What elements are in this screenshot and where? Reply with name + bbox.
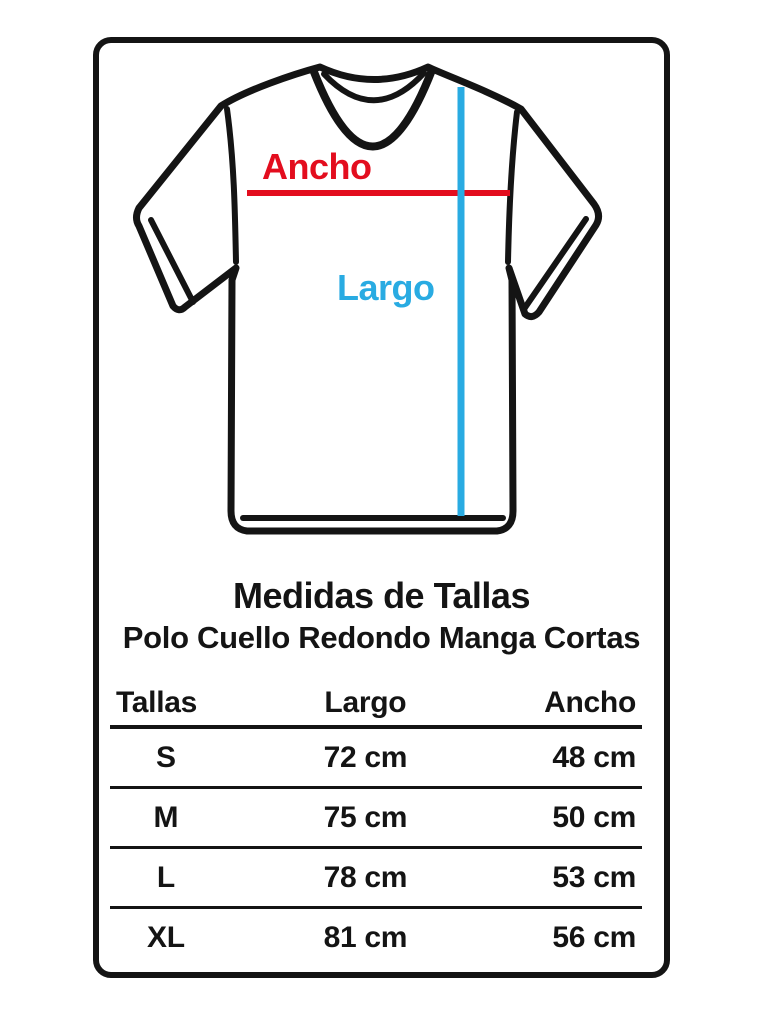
table-row: M 75 cm 50 cm: [110, 789, 642, 849]
width-cell: 50 cm: [509, 801, 642, 835]
size-cell: L: [110, 861, 222, 895]
size-chart-page: Ancho Largo Medidas de Tallas Polo Cuell…: [0, 0, 760, 1013]
width-cell: 48 cm: [509, 741, 642, 775]
header-width: Ancho: [509, 686, 642, 720]
size-table: Tallas Largo Ancho S 72 cm 48 cm M 75 cm…: [110, 680, 642, 966]
chart-title: Medidas de Tallas: [93, 576, 670, 616]
header-length: Largo: [222, 686, 509, 720]
width-label: Ancho: [262, 149, 372, 185]
table-row: S 72 cm 48 cm: [110, 729, 642, 789]
chart-subtitle: Polo Cuello Redondo Manga Cortas: [70, 621, 693, 655]
table-row: XL 81 cm 56 cm: [110, 909, 642, 966]
length-cell: 72 cm: [222, 741, 509, 775]
table-header-row: Tallas Largo Ancho: [110, 680, 642, 729]
length-cell: 75 cm: [222, 801, 509, 835]
table-row: L 78 cm 53 cm: [110, 849, 642, 909]
size-cell: M: [110, 801, 222, 835]
header-size: Tallas: [110, 686, 222, 720]
length-label: Largo: [337, 270, 435, 306]
length-cell: 81 cm: [222, 921, 509, 955]
size-cell: S: [110, 741, 222, 775]
size-cell: XL: [110, 921, 222, 955]
width-cell: 56 cm: [509, 921, 642, 955]
width-cell: 53 cm: [509, 861, 642, 895]
length-cell: 78 cm: [222, 861, 509, 895]
